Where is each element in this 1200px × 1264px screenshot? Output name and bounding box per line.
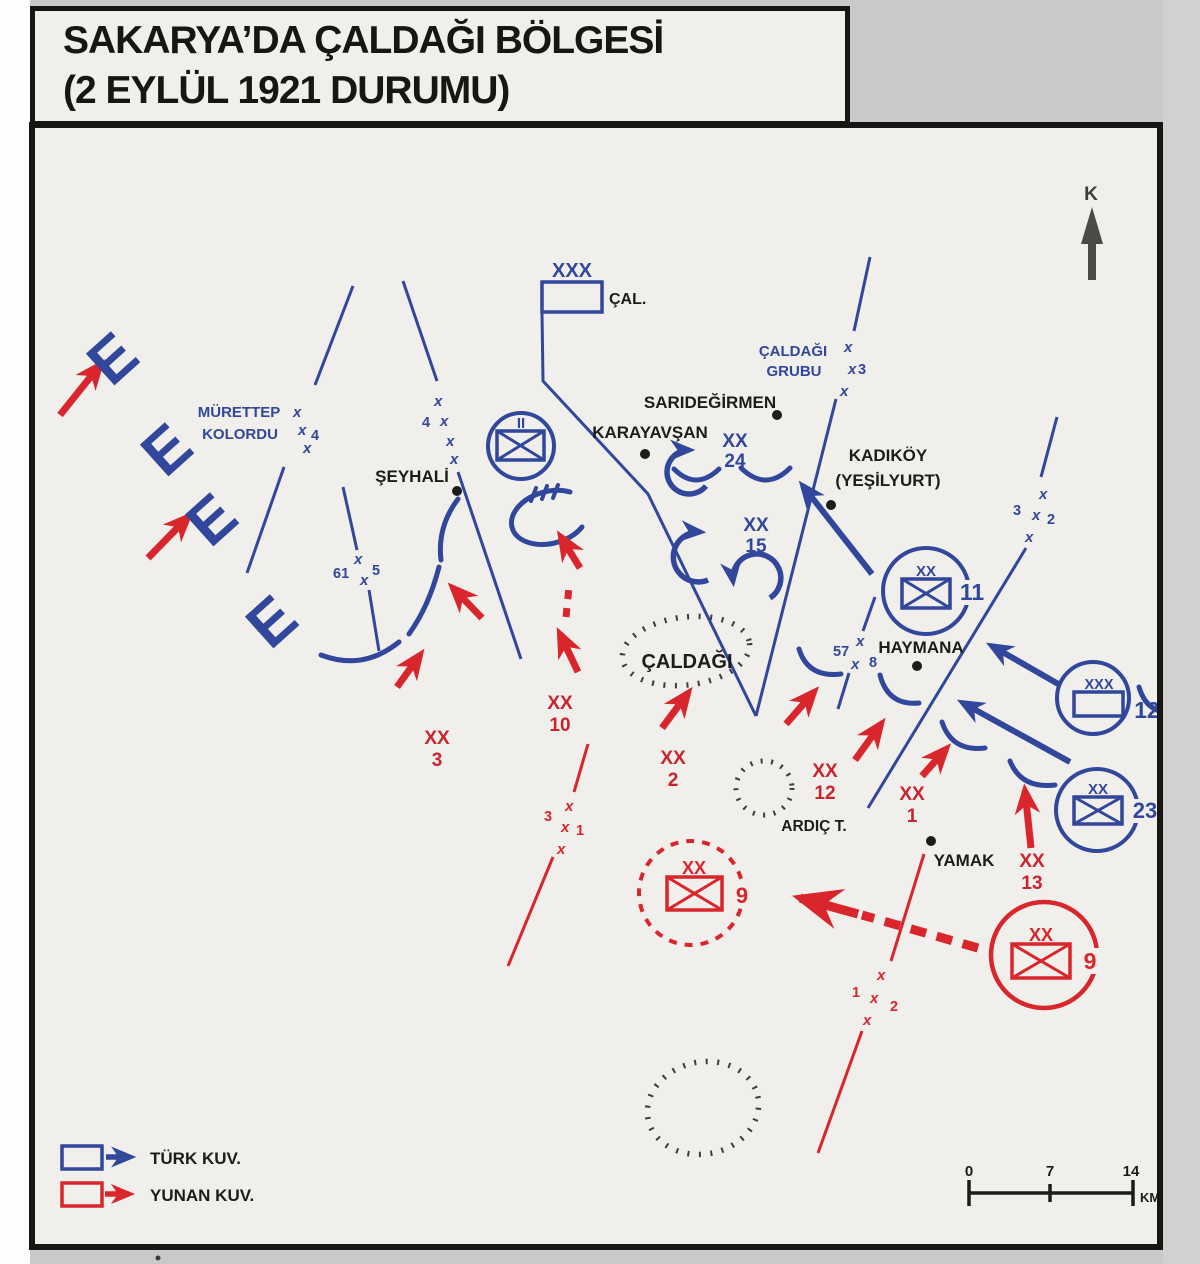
svg-text:1: 1 [907, 806, 918, 827]
svg-text:2: 2 [890, 999, 898, 1015]
hq-echelon: XXX [552, 260, 593, 282]
svg-text:5: 5 [372, 563, 380, 579]
svg-text:57: 57 [833, 644, 849, 660]
ardic-terrain-label: ARDIÇ T. [781, 818, 846, 835]
svg-text:13: 13 [1021, 873, 1042, 894]
svg-text:1: 1 [852, 985, 860, 1001]
label-murettep-1: MÜRETTEP [198, 404, 281, 421]
svg-text:x: x [1031, 507, 1041, 524]
unit-number: 9 [1084, 948, 1097, 974]
unit-number: 11 [960, 579, 985, 605]
place-yesilyurt: (YEŞİLYURT) [835, 471, 940, 490]
svg-text:61: 61 [333, 566, 349, 582]
hq-name: ÇAL. [609, 291, 646, 308]
svg-text:24: 24 [724, 451, 746, 472]
svg-text:x: x [1024, 529, 1034, 546]
svg-text:10: 10 [549, 715, 570, 736]
hq-flag-icon [542, 282, 602, 312]
svg-text:2: 2 [668, 770, 679, 791]
scale-unit: KM [1140, 1190, 1160, 1205]
svg-text:XX: XX [547, 693, 573, 714]
svg-text:x: x [292, 404, 302, 421]
svg-text:x: x [445, 433, 455, 450]
legend-greek-label: YUNAN KUV. [150, 1186, 254, 1205]
svg-text:x: x [564, 798, 574, 815]
place-seyhali: ŞEYHALİ [375, 467, 449, 486]
label-grubu-1: ÇALDAĞI [759, 342, 827, 360]
svg-text:3: 3 [432, 750, 443, 771]
map-title-line2: (2 EYLÜL 1921 DURUMU) [63, 66, 845, 116]
svg-text:x: x [353, 551, 363, 568]
svg-text:15: 15 [745, 536, 767, 557]
unit-number: 23 [1133, 798, 1157, 823]
map-title-line1: SAKARYA’DA ÇALDAĞI BÖLGESİ [63, 16, 845, 66]
svg-text:x: x [556, 841, 566, 858]
unit-number: 12 [1134, 697, 1160, 723]
svg-text:2: 2 [1047, 512, 1055, 528]
svg-text:x: x [359, 572, 369, 589]
svg-text:x: x [297, 422, 307, 439]
svg-text:x: x [560, 819, 570, 836]
label-murettep-2: KOLORDU [202, 426, 278, 443]
svg-text:XX: XX [743, 515, 769, 536]
scale-tick-14: 14 [1123, 1163, 1140, 1180]
unit-echelon: XX [1088, 781, 1108, 798]
svg-text:x: x [449, 451, 459, 468]
map-title-box: SAKARYA’DA ÇALDAĞI BÖLGESİ (2 EYLÜL 1921… [30, 6, 850, 126]
scale-tick-0: 0 [965, 1163, 973, 1180]
svg-text:XX: XX [899, 784, 925, 805]
svg-text:3: 3 [544, 809, 552, 825]
svg-text:XX: XX [424, 728, 450, 749]
legend-turkish-label: TÜRK KUV. [150, 1149, 241, 1168]
unit-echelon: XX [682, 858, 706, 878]
north-label: K [1084, 184, 1098, 205]
svg-text:XX: XX [660, 748, 686, 769]
svg-text:x: x [847, 361, 857, 378]
caldagi-terrain-label: ÇALDAĞI [641, 649, 732, 673]
unit-echelon: II [517, 415, 525, 432]
place-yamak: YAMAK [934, 851, 995, 870]
print-speck [156, 1256, 161, 1261]
unit-number: 9 [736, 883, 748, 908]
svg-text:XX: XX [1019, 851, 1045, 872]
svg-text:x: x [1038, 486, 1048, 503]
place-sarigedirmen: SARIDEĞİRMEN [644, 393, 776, 412]
place-kadikoy: KADIKÖY [849, 446, 928, 465]
svg-text:3: 3 [1013, 503, 1021, 519]
svg-text:x: x [850, 656, 860, 673]
svg-text:x: x [439, 413, 449, 430]
scale-tick-7: 7 [1046, 1163, 1054, 1180]
svg-text:8: 8 [869, 655, 877, 671]
svg-text:12: 12 [814, 783, 835, 804]
svg-text:x: x [855, 633, 865, 650]
svg-text:x: x [839, 383, 849, 400]
unit-echelon: XX [916, 563, 936, 580]
place-karayavsan: KARAYAVŞAN [592, 423, 708, 442]
page-right-margin [1163, 0, 1200, 1264]
label-grubu-2: GRUBU [767, 363, 822, 380]
svg-text:x: x [433, 393, 443, 410]
svg-text:x: x [862, 1012, 872, 1029]
svg-text:1: 1 [576, 823, 584, 839]
svg-text:x: x [869, 990, 879, 1007]
svg-text:3: 3 [858, 362, 866, 378]
svg-text:XX: XX [812, 761, 838, 782]
unit-echelon: XX [1029, 925, 1053, 945]
place-haymana: HAYMANA [878, 638, 963, 657]
battle-map: K xxx xxxx xx xxx xxx xx 4 4 61 5 3 3 2 … [0, 0, 1200, 1264]
svg-text:x: x [876, 967, 886, 984]
svg-text:XX: XX [722, 431, 748, 452]
svg-text:4: 4 [422, 415, 430, 431]
unit-echelon: XXX [1084, 677, 1113, 693]
svg-text:x: x [843, 339, 853, 356]
svg-text:4: 4 [311, 428, 319, 444]
